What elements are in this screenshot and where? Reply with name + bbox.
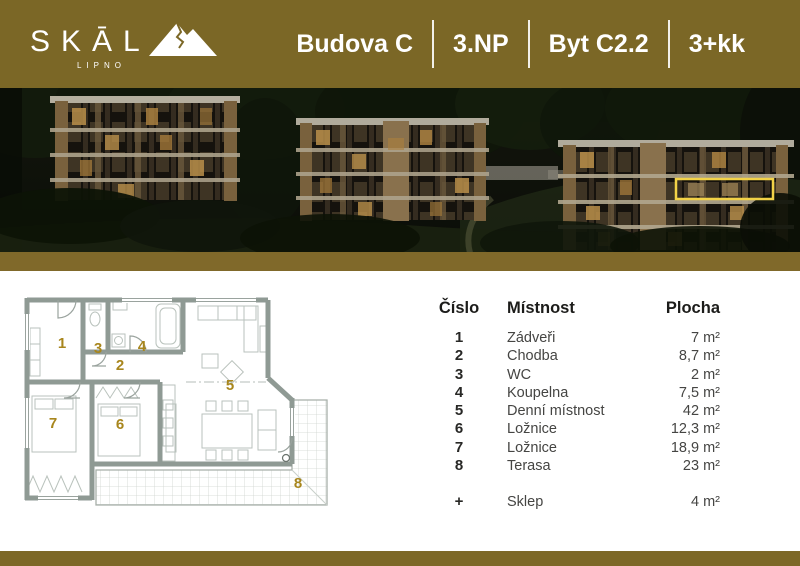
cell-room: Denní místnost [485,403,628,419]
cell-number: 5 [433,402,485,419]
divider [668,20,670,68]
cell-room: Sklep [485,494,628,510]
gold-divider [0,252,800,271]
table-row: 6 Ložnice 12,3 m² [433,420,720,438]
cell-room: Terasa [485,458,628,474]
col-header-number: Číslo [433,299,485,318]
cell-room: WC [485,367,628,383]
logo-subtitle: LIPNO [77,61,219,70]
floor-plan: 1 2 3 4 5 6 7 8 [10,288,430,528]
table-row: 7 Ložnice 18,9 m² [433,439,720,457]
building-rendering-scene [0,88,800,253]
cell-number: 3 [433,366,485,383]
floor-label: 3.NP [453,30,509,59]
table-header: Číslo Místnost Plocha [433,299,720,323]
cell-area: 42 m² [628,403,720,419]
brochure-page: SKĀL LIPNO Budova C 3.NP Byt C2.2 3+kk [0,0,800,566]
divider [432,20,434,68]
table-row: 8 Terasa 23 m² [433,457,720,475]
table-row: 5 Denní místnost 42 m² [433,402,720,420]
column-marker [283,455,290,462]
mountain-icon [147,18,219,58]
building-label: Budova C [296,30,413,59]
cell-area: 23 m² [628,458,720,474]
cell-area: 18,9 m² [628,440,720,456]
cell-area: 8,7 m² [628,348,720,364]
cell-number: 2 [433,347,485,364]
room-number-3: 3 [94,340,102,357]
table-row: 4 Koupelna 7,5 m² [433,384,720,402]
table-row: 2 Chodba 8,7 m² [433,347,720,365]
col-header-area: Plocha [628,299,720,318]
unit-breadcrumb: Budova C 3.NP Byt C2.2 3+kk [296,20,745,68]
room-number-1: 1 [58,335,66,352]
cell-area: 12,3 m² [628,421,720,437]
cell-number: 8 [433,457,485,474]
cell-room: Chodba [485,348,628,364]
logo: SKĀL LIPNO [30,18,219,70]
room-number-7: 7 [49,415,57,432]
room-number-6: 6 [116,416,124,433]
cell-room: Ložnice [485,421,628,437]
cell-area: 7 m² [628,330,720,346]
room-number-5: 5 [226,377,234,394]
cell-area: 7,5 m² [628,385,720,401]
table-row: 1 Zádveři 7 m² [433,329,720,347]
divider [528,20,530,68]
room-number-4: 4 [138,338,147,355]
cell-number: 1 [433,329,485,346]
cell-area: 4 m² [628,494,720,510]
cell-number: 4 [433,384,485,401]
logo-wordmark: SKĀL [30,27,151,57]
cell-room: Zádveři [485,330,628,346]
table-row-cellar: + Sklep 4 m² [433,493,720,511]
gold-footer [0,551,800,566]
building-rendering [0,88,800,253]
cell-room: Ložnice [485,440,628,456]
cell-number: + [433,493,485,510]
cell-number: 7 [433,439,485,456]
room-table: Číslo Místnost Plocha 1 Zádveři 7 m² 2 C… [433,299,720,512]
col-header-room: Místnost [485,299,628,318]
cell-number: 6 [433,420,485,437]
cell-room: Koupelna [485,385,628,401]
room-number-8: 8 [294,475,302,492]
room-number-2: 2 [116,357,124,374]
header: SKĀL LIPNO Budova C 3.NP Byt C2.2 3+kk [0,0,800,88]
cell-area: 2 m² [628,367,720,383]
table-row: 3 WC 2 m² [433,366,720,384]
unit-label: Byt C2.2 [549,30,649,59]
layout-label: 3+kk [689,30,745,59]
